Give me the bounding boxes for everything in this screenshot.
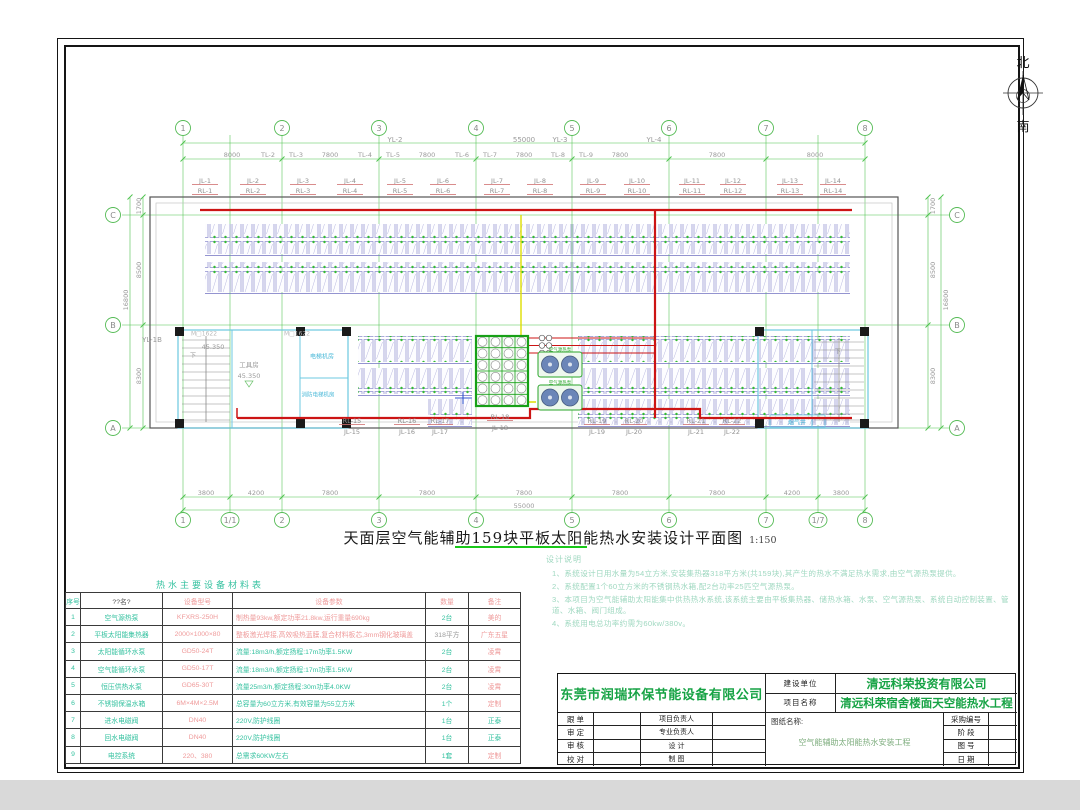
label-underline [527, 184, 553, 185]
label-underline [624, 184, 650, 185]
riser-label: JL-6 [436, 177, 449, 185]
approval-label: 审 定 [558, 726, 594, 739]
structural-column [755, 419, 764, 428]
build-unit-value: 清远科荣投资有限公司 [836, 674, 1017, 694]
riser-label: JL-13 [781, 177, 798, 185]
table-cell: 2台 [426, 609, 469, 626]
room-label: 电梯机房 [310, 353, 334, 361]
table-row: 2平板太阳能集热器2000×1000×80整板激光焊接,高效吸热蓝膜,复合材料板… [66, 626, 521, 643]
pipe-axis-label: TL-3 [288, 151, 303, 159]
grid-bubble-label: 1 [180, 516, 185, 525]
dim-label-top: 7800 [709, 151, 726, 159]
dim-label-bottom: 4200 [248, 489, 265, 497]
approval-value [594, 726, 641, 739]
table-cell: 4 [66, 660, 81, 677]
riser-label: RL-7 [490, 187, 505, 195]
riser-label: JL-4 [343, 177, 356, 185]
pipe-axis-label: TL-5 [385, 151, 400, 159]
table-cell: DN40 [163, 729, 233, 746]
dim-label-left: 8500 [135, 262, 143, 279]
drawing-title: 天面层空气能辅助159块平板太阳能热水安装设计平面图1:150 [300, 527, 820, 548]
materials-table: 序号??名?设备型号设备参数数量备注1空气源热泵KFXRS-250H制热量93k… [65, 592, 521, 764]
doc-meta-value [989, 753, 1017, 766]
dim-label-bottom: 3800 [833, 489, 850, 497]
table-cell: 正泰 [469, 712, 521, 729]
tank-cell [478, 361, 487, 370]
riser-label: RL-6 [436, 187, 451, 195]
riser-label: RL-2 [246, 187, 261, 195]
room-label: 空气源热泵 [549, 379, 572, 386]
grid-bubble-label: A [110, 424, 116, 433]
grid-bubble-label: 3 [376, 516, 381, 525]
tank-cell [491, 384, 500, 393]
approval-value [594, 740, 641, 753]
table-cell: GD50-17T [163, 660, 233, 677]
label-underline [820, 194, 846, 195]
table-cell: 总需求60KW左右 [233, 746, 426, 763]
table-cell: 恒压供热水泵 [81, 677, 163, 694]
table-cell: 1台 [426, 729, 469, 746]
title-block: 东莞市润瑞环保节能设备有限公司 建设单位 清远科荣投资有限公司 项目名称 清远科… [557, 673, 1016, 765]
riser-label: JL-18 [491, 424, 508, 432]
grid-bubble-label: 6 [666, 124, 671, 133]
label-underline [394, 424, 420, 425]
table-row: 6不锈钢保温水箱6M×4M×2.5M总容量为60立方米,有效容量为55立方米1个… [66, 694, 521, 711]
materials-table-header: 设备型号 [163, 593, 233, 609]
solar-panel-array [578, 368, 850, 394]
tank-cell [504, 372, 513, 381]
grid-bubble-label: 4 [473, 516, 478, 525]
label-underline [621, 424, 647, 425]
grid-bubble-label: 5 [569, 516, 574, 525]
table-row: 9电控系统220、380总需求60KW左右1套定制 [66, 746, 521, 763]
label-underline [427, 424, 453, 425]
riser-label: JL-2 [246, 177, 259, 185]
label-underline [484, 184, 510, 185]
approval-label: 审 核 [558, 740, 594, 753]
table-cell: 空气源热泵 [81, 609, 163, 626]
table-row: 3太阳能循环水泵GD50-24T流量:18m3/h,额定扬程:17m功率1.5K… [66, 643, 521, 660]
doc-meta-value [989, 740, 1017, 753]
table-cell: 2台 [426, 643, 469, 660]
label-underline [387, 194, 413, 195]
dim-label-top: 8000 [224, 151, 241, 159]
grid-bubble-label: 8 [862, 124, 867, 133]
dim-label-bottom: 7800 [322, 489, 339, 497]
pump-icon [539, 343, 545, 349]
table-row: 5恒压供热水泵GD65-30T流量25m3/h,额定扬程:30m功率4.0KW2… [66, 677, 521, 694]
room-label: 45.350 [238, 372, 261, 380]
riser-label: JL-12 [724, 177, 741, 185]
table-cell: 流量:18m3/h,额定扬程:17m功率1.5KW [233, 660, 426, 677]
riser-label: RL-22 [723, 417, 742, 425]
label-underline [679, 194, 705, 195]
design-note-item: 3、本项目为空气能辅助太阳能集中供热热水系统,该系统主要由平板集热器、储热水箱、… [552, 594, 1016, 616]
label-underline [290, 194, 316, 195]
table-cell: 2台 [426, 660, 469, 677]
solar-panel-array [578, 336, 850, 362]
pipe-axis-label: YL-2 [386, 136, 402, 144]
riser-label: JL-1 [198, 177, 211, 185]
label-underline [240, 194, 266, 195]
sheet-name-cell: 图纸名称: 空气能辅助太阳能热水安装工程 [766, 713, 944, 766]
table-cell: 9 [66, 746, 81, 763]
table-cell: 1个 [426, 694, 469, 711]
dim-label-right: 1700 [929, 198, 937, 215]
tank-cell [478, 384, 487, 393]
pipe-axis-label: 55000 [513, 136, 535, 144]
label-underline [192, 184, 218, 185]
label-underline [290, 184, 316, 185]
riser-label: RL-16 [398, 417, 417, 425]
design-notes-title: 设计说明 [546, 554, 1016, 565]
riser-label: JL-15 [343, 428, 360, 436]
table-cell: 2台 [426, 677, 469, 694]
tank-cell [504, 349, 513, 358]
table-cell: GD65-30T [163, 677, 233, 694]
room-label: 工具房 [239, 360, 259, 369]
label-underline [527, 194, 553, 195]
table-cell: 2000×1000×80 [163, 626, 233, 643]
grid-bubble-label: 2 [279, 516, 284, 525]
room-label: 下 [835, 349, 841, 356]
grid-bubble-label: 1 [180, 124, 185, 133]
dim-label-bottom: 7800 [709, 489, 726, 497]
riser-label: RL-14 [824, 187, 843, 195]
riser-label: RL-4 [343, 187, 358, 195]
room-label: YL-1B [141, 336, 162, 344]
dim-label-left: 1700 [135, 198, 143, 215]
table-cell: 美的 [469, 609, 521, 626]
structural-column [860, 419, 869, 428]
room-label: 空气源热泵 [549, 346, 572, 353]
room-label: 烟气井 [788, 419, 806, 427]
tank-cell [504, 361, 513, 370]
role-label: 设 计 [641, 740, 713, 753]
grid-bubble-label: 7 [763, 516, 768, 525]
room-label: M□1622 [284, 331, 310, 338]
tank-cell [478, 337, 487, 346]
grid-bubble-label: B [110, 321, 116, 330]
table-cell: 太阳能循环水泵 [81, 643, 163, 660]
table-cell: 2 [66, 626, 81, 643]
dim-label-top: 7800 [516, 151, 533, 159]
riser-label: RL-18 [491, 413, 510, 421]
grid-bubble-label: 4 [473, 124, 478, 133]
table-cell: 整板激光焊接,高效吸热蓝膜,复合材料板芯,3mm钢化玻璃盖 [233, 626, 426, 643]
label-underline [240, 184, 266, 185]
design-note-item: 1、系统设计日用水量为54立方米,安装集热器318平方米(共159块),其产生的… [552, 568, 1016, 579]
riser-label: JL-14 [824, 177, 841, 185]
riser-label: RL-5 [393, 187, 408, 195]
pipe-axis-label: YL-3 [551, 136, 567, 144]
level-mark [245, 381, 253, 387]
table-cell: 6M×4M×2.5M [163, 694, 233, 711]
north-compass-icon [1003, 71, 1043, 115]
dim-label-top: 7800 [612, 151, 629, 159]
solar-panel-array [205, 224, 850, 254]
riser-label: JL-21 [687, 428, 704, 436]
table-row: 4空气能循环水泵GD50-17T流量:18m3/h,额定扬程:17m功率1.5K… [66, 660, 521, 677]
riser-label: RL-1 [198, 187, 213, 195]
dim-label-bottom: 7800 [419, 489, 436, 497]
pump-icon [546, 335, 552, 341]
table-cell: 凌霄 [469, 660, 521, 677]
riser-label: RL-20 [625, 417, 644, 425]
dim-label-right: 8500 [929, 262, 937, 279]
pipe-axis-label: TL-2 [260, 151, 275, 159]
table-cell: 8 [66, 729, 81, 746]
dim-total-bottom: 55000 [514, 502, 535, 510]
pipe-axis-label: TL-7 [482, 151, 497, 159]
room-label: 45.350 [202, 343, 225, 351]
role-label: 项目负责人 [641, 713, 713, 726]
drawing-sheet: YL-255000YL-3YL-480007800780078007800780… [0, 0, 1080, 810]
table-cell: KFXRS-250H [163, 609, 233, 626]
label-underline [720, 194, 746, 195]
dim-label-bottom: 7800 [516, 489, 533, 497]
table-cell: 凌霄 [469, 643, 521, 660]
riser-label: JL-20 [625, 428, 642, 436]
role-value [713, 753, 766, 766]
label-underline [580, 194, 606, 195]
plan-shape [548, 363, 552, 367]
tank-cell [504, 337, 513, 346]
label-underline [679, 184, 705, 185]
table-cell: 220V,防护线圈 [233, 729, 426, 746]
riser-label: JL-17 [431, 428, 448, 436]
label-underline [584, 424, 610, 425]
materials-table-header: 数量 [426, 593, 469, 609]
riser-label: RL-17 [431, 417, 450, 425]
label-underline [337, 184, 363, 185]
table-cell: 220、380 [163, 746, 233, 763]
grid-bubble-label: C [110, 211, 116, 220]
grid-bubble-label: 1/1 [224, 516, 237, 525]
compass-south-label: 南 [1004, 116, 1042, 135]
room-label: 消防电梯机房 [301, 391, 335, 399]
solar-panel-array [578, 399, 850, 425]
grid-bubble-label: 8 [862, 516, 867, 525]
pipe-axis-label: TL-9 [578, 151, 593, 159]
table-cell: 电控系统 [81, 746, 163, 763]
label-underline [820, 184, 846, 185]
grid-bubble-label: B [954, 321, 960, 330]
tank-cell [491, 349, 500, 358]
doc-meta-label: 阶 段 [944, 726, 989, 739]
label-underline [430, 194, 456, 195]
tank-cell [517, 349, 526, 358]
table-cell: 6 [66, 694, 81, 711]
table-cell: 不锈钢保温水箱 [81, 694, 163, 711]
table-cell: 回水电磁阀 [81, 729, 163, 746]
table-cell: 流量:18m3/h,额定扬程:17m功率1.5KW [233, 643, 426, 660]
riser-label: RL-19 [588, 417, 607, 425]
label-underline [339, 424, 365, 425]
dim-label-bottom: 4200 [784, 489, 801, 497]
tank-cell [517, 361, 526, 370]
room-label: 下 [190, 353, 196, 360]
pipe-axis-label: YL-4 [645, 136, 662, 144]
tank-cell [504, 384, 513, 393]
riser-label: JL-16 [398, 428, 415, 436]
riser-label: RL-9 [586, 187, 601, 195]
dim-total-right: 16800 [942, 290, 950, 311]
dim-label-top: 8000 [807, 151, 824, 159]
riser-label: RL-21 [687, 417, 706, 425]
sheet-name-label: 图纸名称: [766, 713, 943, 727]
scan-bottom-band [0, 780, 1080, 810]
tank-cell [478, 372, 487, 381]
riser-label: RL-11 [683, 187, 702, 195]
dim-label-bottom: 7800 [612, 489, 629, 497]
pipe-axis-label: TL-6 [454, 151, 469, 159]
plan-shape [568, 396, 572, 400]
role-value [713, 740, 766, 753]
label-underline [719, 424, 745, 425]
role-value [713, 726, 766, 739]
table-cell: 空气能循环水泵 [81, 660, 163, 677]
riser-label: JL-10 [628, 177, 645, 185]
doc-meta-label: 图 号 [944, 740, 989, 753]
dim-label-right: 8300 [929, 368, 937, 385]
tank-cell [478, 349, 487, 358]
tank-cell [517, 384, 526, 393]
label-underline [720, 184, 746, 185]
tank-cell [491, 396, 500, 405]
label-underline [337, 194, 363, 195]
solar-panel-array [205, 262, 850, 292]
solar-panel-array [358, 336, 472, 362]
table-cell: GD50-24T [163, 643, 233, 660]
table-cell: 定制 [469, 694, 521, 711]
drawing-title-text: 天面层空气能辅助159块平板太阳能热水安装设计平面图 [343, 529, 743, 547]
drawing-scale: 1:150 [749, 535, 776, 546]
structural-column [342, 327, 351, 336]
grid-bubble-label: 1/7 [812, 516, 825, 525]
riser-label: RL-8 [533, 187, 548, 195]
table-cell: 1套 [426, 746, 469, 763]
table-cell: 广东五星 [469, 626, 521, 643]
build-unit-label: 建设单位 [766, 674, 836, 694]
grid-bubble-label: C [954, 211, 960, 220]
dim-label-top: 7800 [322, 151, 339, 159]
design-note-item: 4、系统用电总功率约需为60kw/380v。 [552, 618, 1016, 629]
label-underline [484, 194, 510, 195]
riser-label: JL-8 [533, 177, 546, 185]
dim-label-top: 7800 [419, 151, 436, 159]
table-cell: 流量25m3/h,额定扬程:30m功率4.0KW [233, 677, 426, 694]
riser-label: JL-19 [588, 428, 605, 436]
grid-bubble-label: A [954, 424, 960, 433]
tank-cell [517, 372, 526, 381]
riser-label: RL-15 [343, 417, 362, 425]
role-label: 专业负责人 [641, 726, 713, 739]
tank-cell [478, 396, 487, 405]
riser-label: JL-3 [296, 177, 309, 185]
grid-bubble-label: 5 [569, 124, 574, 133]
table-cell: 5 [66, 677, 81, 694]
sheet-name-value: 空气能辅助太阳能热水安装工程 [766, 737, 943, 748]
project-name-value: 清远科荣宿舍楼面天空能热水工程 [836, 694, 1017, 714]
dim-label-left: 8300 [135, 368, 143, 385]
table-cell: 总容量为60立方米,有效容量为55立方米 [233, 694, 426, 711]
riser-label: RL-12 [724, 187, 743, 195]
compass-north-label: 北 [1004, 52, 1042, 71]
materials-table-header: 备注 [469, 593, 521, 609]
approval-value [594, 713, 641, 726]
grid-bubble-label: 2 [279, 124, 284, 133]
label-underline [683, 424, 709, 425]
table-cell: 7 [66, 712, 81, 729]
role-label: 制 图 [641, 753, 713, 766]
structural-column [175, 327, 184, 336]
approval-value [594, 753, 641, 766]
materials-table-title: 热水主要设备材料表 [65, 578, 355, 591]
table-cell: 定制 [469, 746, 521, 763]
tank-cell [491, 337, 500, 346]
table-cell: 3 [66, 643, 81, 660]
role-value [713, 713, 766, 726]
approval-label: 校 对 [558, 753, 594, 766]
pipe-axis-label: TL-4 [357, 151, 372, 159]
approval-label: 跟 单 [558, 713, 594, 726]
title-underline [455, 546, 587, 548]
doc-meta-label: 日 期 [944, 753, 989, 766]
materials-table-header: 设备参数 [233, 593, 426, 609]
table-cell: 进水电磁阀 [81, 712, 163, 729]
table-row: 1空气源热泵KFXRS-250H制热量93kw,额定功率21.8kw,运行重量6… [66, 609, 521, 626]
structural-column [755, 327, 764, 336]
table-cell: 平板太阳能集热器 [81, 626, 163, 643]
materials-table-header: ??名? [81, 593, 163, 609]
riser-label: JL-7 [490, 177, 503, 185]
doc-meta-value [989, 713, 1017, 726]
label-underline [430, 184, 456, 185]
structural-column [175, 419, 184, 428]
design-notes: 设计说明 1、系统设计日用水量为54立方米,安装集热器318平方米(共159块)… [546, 554, 1016, 631]
label-underline [777, 194, 803, 195]
table-cell: 凌霄 [469, 677, 521, 694]
grid-bubble-label: 7 [763, 124, 768, 133]
table-cell: 1 [66, 609, 81, 626]
table-row: 7进水电磁阀DN40220V,防护线圈1台正泰 [66, 712, 521, 729]
doc-meta-label: 采购编号 [944, 713, 989, 726]
riser-label: RL-13 [781, 187, 800, 195]
riser-label: JL-22 [723, 428, 740, 436]
label-underline [777, 184, 803, 185]
grid-bubble-label: 3 [376, 124, 381, 133]
riser-label: JL-5 [393, 177, 406, 185]
plan-shape [548, 396, 552, 400]
table-cell: 1台 [426, 712, 469, 729]
riser-label: RL-3 [296, 187, 311, 195]
design-note-item: 2、系统配置1个60立方米的不锈钢热水箱,配2台功率25匹空气源热泵。 [552, 581, 1016, 592]
riser-label: RL-10 [628, 187, 647, 195]
structural-column [296, 419, 305, 428]
label-underline [387, 184, 413, 185]
label-underline [487, 420, 513, 421]
riser-label: JL-9 [586, 177, 599, 185]
doc-meta-value [989, 726, 1017, 739]
solar-panel-array [358, 368, 472, 394]
project-name-label: 项目名称 [766, 694, 836, 714]
label-underline [624, 194, 650, 195]
pump-icon [539, 335, 545, 341]
table-cell: DN40 [163, 712, 233, 729]
table-row: 8回水电磁阀DN40220V,防护线圈1台正泰 [66, 729, 521, 746]
table-cell: 制热量93kw,额定功率21.8kw,运行重量690kg [233, 609, 426, 626]
